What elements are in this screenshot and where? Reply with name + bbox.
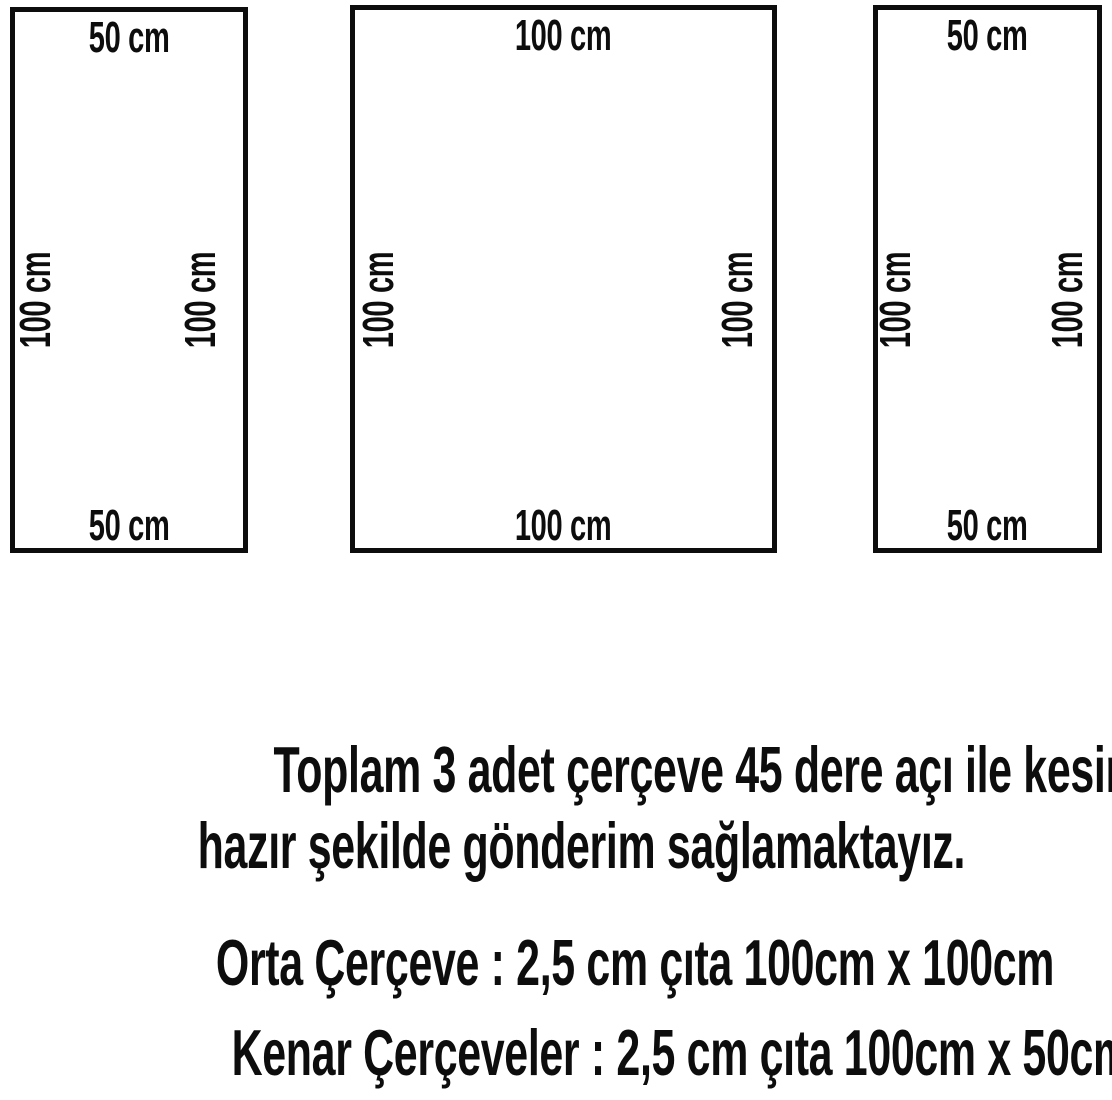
dim-label-right-text: 100 cm [718, 252, 758, 349]
frame-rect-left: 50 cm 100 cm 100 cm 50 cm [10, 7, 248, 553]
dim-label-bottom-text: 100 cm [515, 506, 612, 546]
caption-line-1: Toplam 3 adet çerçeve 45 dere açı ile ke… [0, 732, 1112, 808]
caption-line-2: hazır şekilde gönderim sağlamaktayız. [0, 808, 1112, 884]
dim-label-top-text: 100 cm [515, 16, 612, 56]
dim-label-right-text: 100 cm [181, 252, 221, 349]
dim-label-top: 50 cm [15, 18, 243, 58]
frame-rect-middle: 100 cm 100 cm 100 cm 100 cm [350, 5, 777, 553]
dim-label-bottom-text: 50 cm [947, 506, 1028, 546]
frame-size-diagram: 50 cm 100 cm 100 cm 50 cm 100 cm 100 cm … [0, 0, 1112, 1100]
dim-label-top-text: 50 cm [89, 18, 170, 58]
dim-label-top: 50 cm [878, 16, 1097, 56]
dim-label-bottom: 50 cm [878, 506, 1097, 546]
dim-label-bottom: 100 cm [355, 506, 772, 546]
dim-label-bottom-text: 50 cm [89, 506, 170, 546]
spec-side-frames: Kenar Çerçeveler : 2,5 cm çıta 100cm x 5… [0, 1015, 1112, 1091]
caption-line-1-text: Toplam 3 adet çerçeve 45 dere açı ile ke… [274, 732, 1112, 808]
caption-line-2-text: hazır şekilde gönderim sağlamaktayız. [198, 808, 965, 884]
dim-label-left-text: 100 cm [16, 252, 56, 349]
dim-label-left-text: 100 cm [359, 252, 399, 349]
dim-label-top-text: 50 cm [947, 16, 1028, 56]
spec-side-frames-text: Kenar Çerçeveler : 2,5 cm çıta 100cm x 5… [232, 1015, 1112, 1091]
dim-label-left-text: 100 cm [876, 252, 916, 349]
dim-label-bottom: 50 cm [15, 506, 243, 546]
frame-rect-right: 50 cm 100 cm 100 cm 50 cm [873, 5, 1102, 553]
spec-middle-frame: Orta Çerçeve : 2,5 cm çıta 100cm x 100cm [0, 925, 1112, 1001]
dim-label-top: 100 cm [355, 16, 772, 56]
spec-middle-frame-text: Orta Çerçeve : 2,5 cm çıta 100cm x 100cm [216, 925, 1054, 1001]
dim-label-right-text: 100 cm [1048, 252, 1088, 349]
